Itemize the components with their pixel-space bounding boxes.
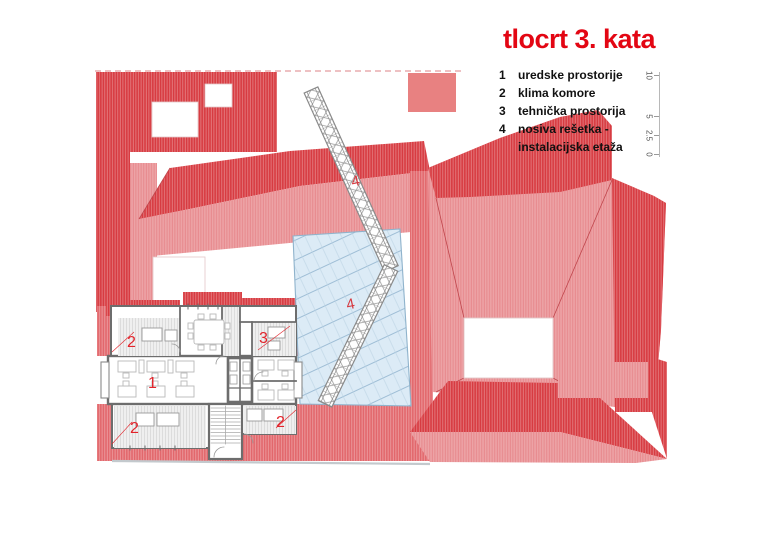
scale-bar-line bbox=[659, 72, 660, 157]
sanitary-core bbox=[228, 358, 252, 402]
label-klima-2-topleft: 2 bbox=[127, 334, 136, 351]
legend-num: 2 bbox=[499, 84, 518, 102]
legend-label: tehnička prostorija bbox=[518, 102, 625, 120]
scale-tick-10 bbox=[654, 75, 659, 76]
page-title: tlocrt 3. kata bbox=[503, 24, 655, 55]
label-klima-2-bottomleft: 2 bbox=[130, 420, 139, 437]
scale-tick-0 bbox=[654, 154, 659, 155]
legend-num: 3 bbox=[499, 102, 518, 120]
label-klima-2-bottomright: 2 bbox=[276, 414, 285, 431]
label-tech-3: 3 bbox=[259, 330, 268, 347]
scale-label-0: 0 bbox=[645, 148, 654, 162]
ground-line bbox=[112, 461, 430, 464]
legend-label: instalacijska etaža bbox=[518, 138, 623, 156]
scale-bar: 10 5 2.5 0 bbox=[640, 68, 680, 163]
bay-window-right bbox=[294, 362, 302, 398]
scale-label-5: 5 bbox=[645, 110, 654, 124]
courtyard-top-notch bbox=[205, 84, 232, 107]
legend-label: klima komore bbox=[518, 84, 595, 102]
scale-label-10: 10 bbox=[645, 69, 654, 83]
staircase bbox=[209, 404, 242, 459]
legend-num: 4 bbox=[499, 120, 518, 138]
courtyard-right bbox=[464, 318, 553, 378]
legend: 1 uredske prostorije 2 klima komore 3 te… bbox=[499, 66, 625, 156]
legend-item-klima: 2 klima komore bbox=[499, 84, 625, 102]
salmon-block bbox=[408, 73, 456, 112]
legend-item-truss: 4 nosiva rešetka - bbox=[499, 120, 625, 138]
legend-item-offices: 1 uredske prostorije bbox=[499, 66, 625, 84]
scale-tick-2-5 bbox=[654, 135, 659, 136]
scale-tick-5 bbox=[654, 116, 659, 117]
legend-item-truss-line2: 4 instalacijska etaža bbox=[499, 138, 625, 156]
legend-num: 1 bbox=[499, 66, 518, 84]
scale-label-2-5: 2.5 bbox=[645, 129, 654, 143]
floor-plan-sheet: 1 2 3 2 2 4 4 tlocrt 3. kata 1 uredske p… bbox=[0, 0, 782, 553]
label-office-1: 1 bbox=[148, 375, 157, 392]
legend-item-tech: 3 tehnička prostorija bbox=[499, 102, 625, 120]
courtyard-topleft bbox=[152, 102, 198, 137]
legend-label: uredske prostorije bbox=[518, 66, 623, 84]
bay-window-left bbox=[101, 362, 109, 398]
legend-label: nosiva rešetka - bbox=[518, 120, 609, 138]
